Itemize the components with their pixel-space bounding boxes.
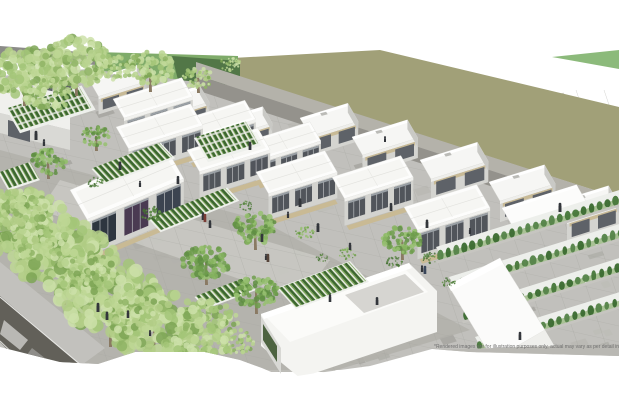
svg-text:*Rendered images are for illus: *Rendered images are for illustration pu… [434, 344, 619, 350]
